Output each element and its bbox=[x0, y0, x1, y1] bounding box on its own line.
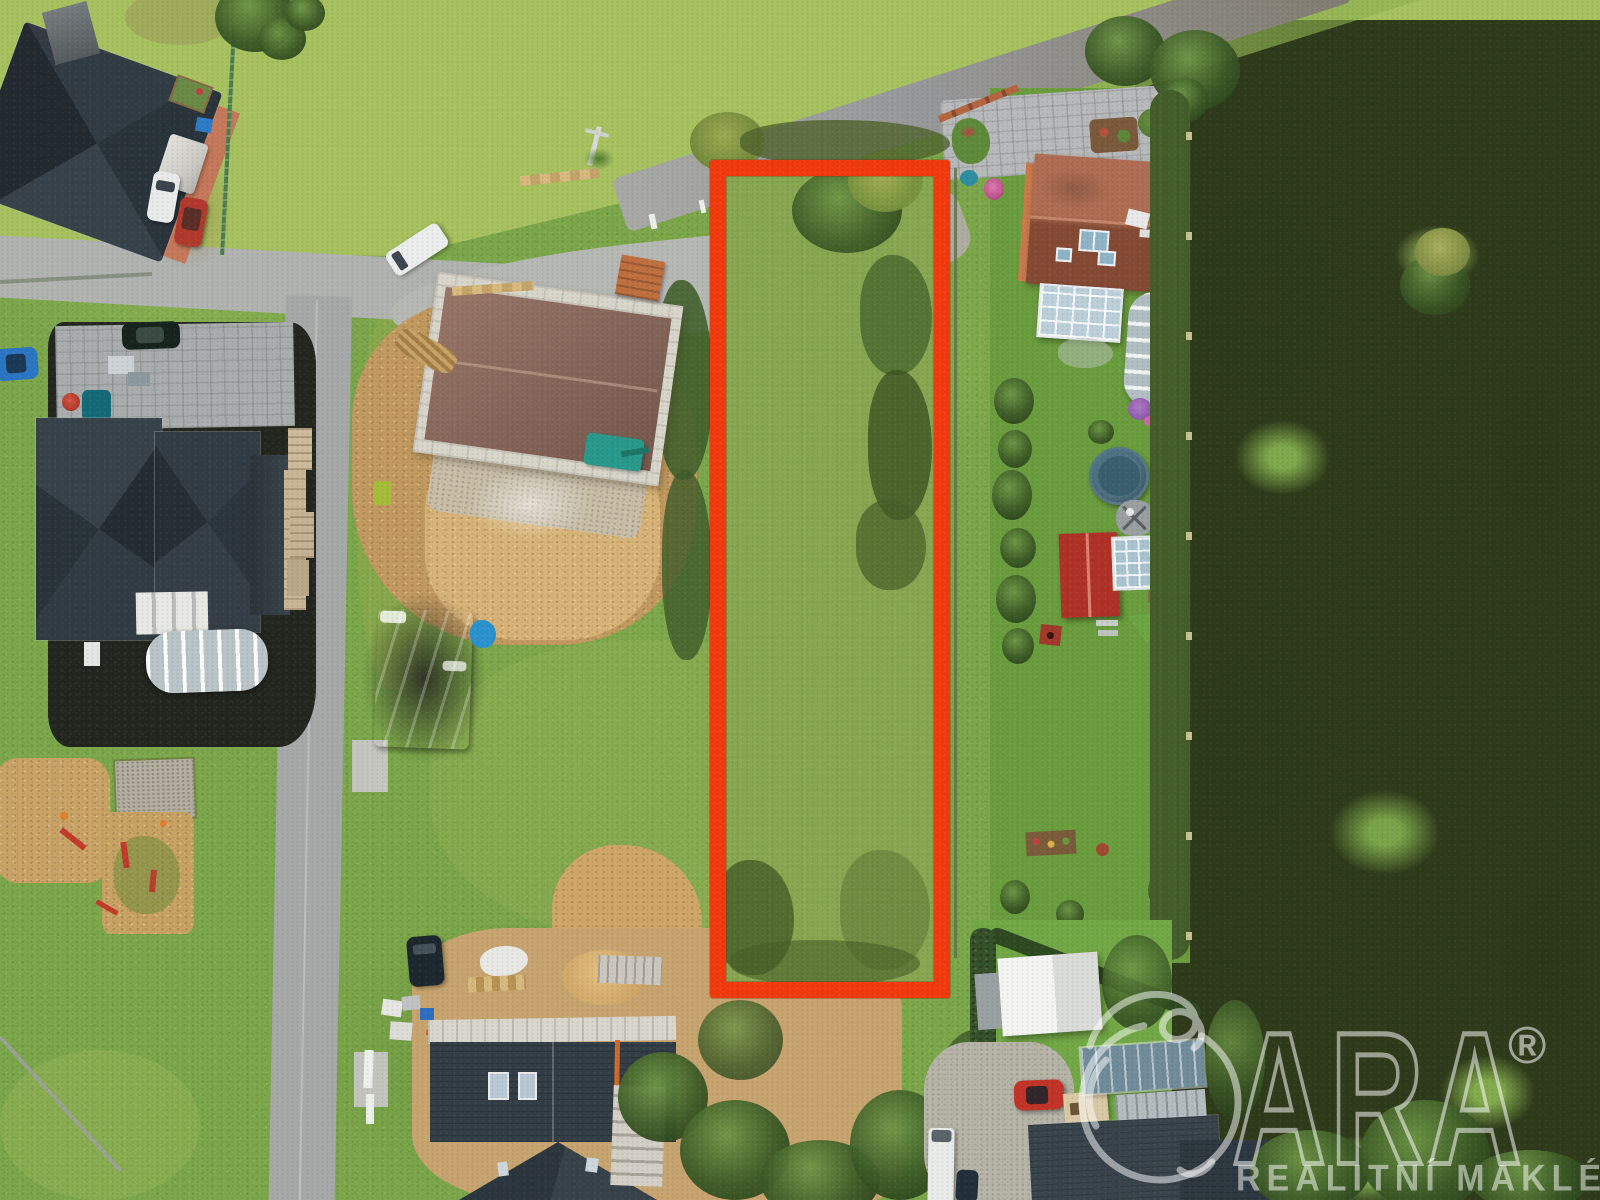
garden-bush bbox=[992, 470, 1032, 520]
roof-skylight-double bbox=[1078, 229, 1109, 253]
dark-suv bbox=[406, 935, 445, 988]
garden-bush bbox=[996, 575, 1036, 623]
orange-marker bbox=[60, 812, 68, 820]
teal-pond bbox=[960, 170, 978, 186]
beige-shed bbox=[1063, 1090, 1109, 1124]
pallet-stack bbox=[128, 372, 150, 386]
roof-skylight bbox=[518, 1072, 537, 1100]
red-car-bottom bbox=[1013, 1079, 1064, 1111]
orange-marker bbox=[160, 820, 167, 827]
tree bbox=[1250, 1130, 1370, 1200]
small-dark-car bbox=[955, 1169, 979, 1200]
dog-house-door bbox=[1047, 632, 1055, 640]
chalk-marks bbox=[470, 470, 590, 540]
trampoline bbox=[1089, 447, 1149, 505]
tarp-white-edge bbox=[442, 661, 466, 672]
yellow-tree bbox=[1415, 228, 1470, 276]
patio-circle bbox=[1116, 500, 1154, 536]
plot-side-fence bbox=[954, 168, 957, 958]
garden-shed-red-roof bbox=[1059, 532, 1120, 618]
excavated-sand-area bbox=[0, 758, 110, 883]
red-flowers bbox=[959, 126, 978, 139]
garage-doors-white bbox=[136, 591, 209, 634]
white-trailer bbox=[927, 1128, 954, 1200]
trailer-cab bbox=[931, 1130, 951, 1142]
white-fence-post bbox=[363, 1050, 373, 1088]
white-fence-post bbox=[366, 1094, 374, 1124]
blue-crate bbox=[420, 1008, 434, 1020]
garden-bush bbox=[994, 378, 1034, 424]
hedge-along-lawn bbox=[1205, 1000, 1265, 1120]
garden-bush bbox=[1000, 880, 1030, 914]
garden-steps bbox=[1096, 620, 1118, 626]
highlighted-plot-boundary bbox=[710, 160, 950, 998]
scrub-dark-patch bbox=[1180, 180, 1340, 420]
pool-enclosure-tunnel bbox=[145, 628, 269, 694]
roof-skylight bbox=[488, 1072, 509, 1100]
car-roof-highlight bbox=[136, 327, 165, 344]
garden-bush bbox=[1002, 628, 1034, 664]
pink-flower-bush bbox=[984, 178, 1004, 200]
garden-steps bbox=[1098, 630, 1118, 636]
van-windshield bbox=[391, 250, 409, 271]
portable-toilet bbox=[373, 481, 391, 505]
garden-bush bbox=[998, 430, 1032, 468]
garden-path-patch bbox=[1058, 338, 1113, 368]
car-windows bbox=[5, 353, 26, 373]
gable-skylight bbox=[585, 1157, 599, 1173]
scrub-dark-patch bbox=[1185, 640, 1325, 860]
scrub-green-patch bbox=[1330, 790, 1440, 875]
red-round-object bbox=[62, 393, 80, 411]
roof-skylight-small bbox=[1097, 250, 1116, 266]
garden-bush bbox=[1000, 528, 1036, 568]
white-crate bbox=[84, 642, 100, 666]
rooftop-white-object bbox=[1139, 229, 1150, 238]
scrub-green-patch bbox=[1235, 420, 1330, 495]
brick-pallet-row bbox=[598, 955, 663, 985]
rooftop-white-object bbox=[1125, 208, 1150, 229]
car-windows bbox=[1026, 1086, 1049, 1105]
glass-conservatory bbox=[1036, 283, 1124, 343]
aerial-photo: ARA ® REALITNÍ MAKLÉŘI bbox=[0, 0, 1600, 1200]
tarp-white-corner bbox=[380, 610, 406, 623]
roof-tile-pallet-orange bbox=[615, 254, 665, 301]
shed-door bbox=[1070, 1103, 1080, 1116]
bush-cluster bbox=[1102, 935, 1172, 1030]
cement-bags bbox=[381, 999, 403, 1018]
material-pallet-beige bbox=[287, 560, 309, 596]
blue-tarp bbox=[374, 608, 474, 749]
dark-green-car bbox=[122, 321, 181, 350]
blue-car bbox=[0, 347, 39, 382]
shed-annex-gray bbox=[974, 973, 1002, 1031]
dog-house bbox=[1039, 624, 1062, 646]
cement-bags bbox=[401, 995, 420, 1011]
teal-car bbox=[82, 390, 111, 421]
bush-band-above-plot bbox=[740, 120, 950, 165]
roof-skylight-small bbox=[1055, 247, 1072, 262]
car-windows bbox=[181, 207, 203, 232]
scrub-dark-patch bbox=[1480, 850, 1600, 1070]
construction-wall-band bbox=[428, 1016, 676, 1044]
gravel-foundation-slab bbox=[115, 759, 195, 820]
roof-seam bbox=[552, 1042, 554, 1142]
shed-ridge bbox=[1086, 533, 1092, 617]
red-flower-dot bbox=[196, 88, 203, 95]
material-pallet-beige bbox=[290, 512, 314, 558]
pole-base-bush bbox=[584, 148, 614, 170]
wood-planks bbox=[468, 974, 527, 992]
fence-post-row bbox=[1186, 130, 1192, 940]
planter-box bbox=[1089, 116, 1139, 153]
gable-skylight bbox=[497, 1161, 509, 1176]
scrub-dark-patch bbox=[1460, 330, 1600, 590]
material-pallet-beige bbox=[288, 428, 312, 470]
terracotta-pot bbox=[1096, 843, 1109, 856]
carport-blue-gray-roof bbox=[1081, 1040, 1206, 1094]
car-windshield bbox=[155, 180, 175, 193]
garden-bush bbox=[1088, 420, 1114, 444]
blue-bin bbox=[195, 117, 213, 134]
tall-hedge-right bbox=[1150, 90, 1190, 960]
bush-cluster bbox=[698, 1000, 783, 1080]
raised-flower-bed bbox=[1025, 830, 1076, 857]
suv-windshield bbox=[413, 943, 437, 955]
white-chair bbox=[1126, 508, 1134, 516]
small-blue-tarp bbox=[470, 620, 496, 648]
white-garden-shed bbox=[997, 952, 1102, 1037]
cement-bags bbox=[389, 1021, 412, 1040]
